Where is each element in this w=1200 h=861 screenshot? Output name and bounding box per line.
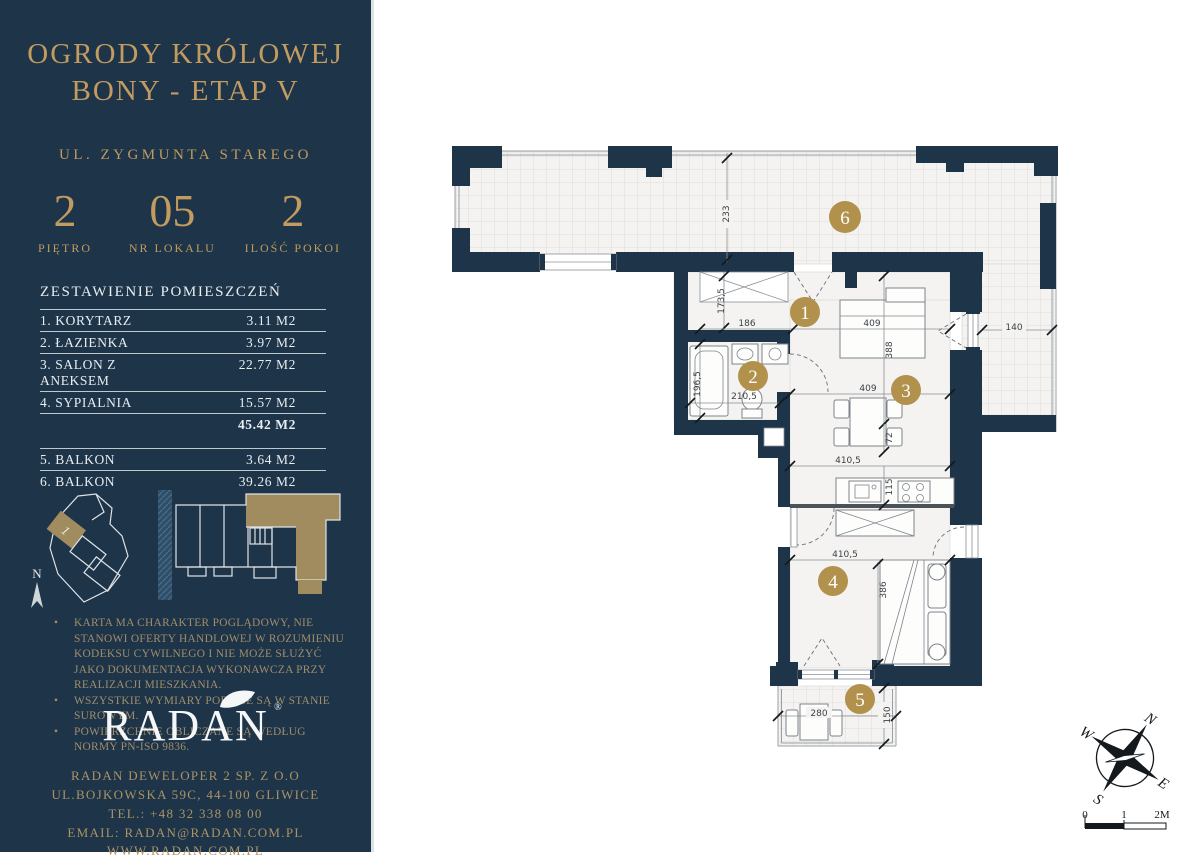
- north-arrow-icon: [31, 582, 43, 608]
- compass-s: S: [1090, 791, 1105, 809]
- disclaimer-item: KARTA MA CHARAKTER POGLĄDOWY, NIE STANOW…: [52, 616, 352, 694]
- scale-1: 1: [1121, 809, 1127, 821]
- rooms-table-heading: ZESTAWIENIE POMIESZCZEŃ: [40, 284, 326, 301]
- room-marker-4: 4: [828, 572, 838, 593]
- room-marker-6: 6: [840, 208, 850, 229]
- room-marker-5: 5: [855, 690, 865, 711]
- dim-label: 210,5: [731, 392, 757, 402]
- dim-label: 115: [885, 478, 895, 495]
- scale-bar: 0 1 2M: [1082, 809, 1170, 829]
- developer-logo: RADAN ®: [0, 702, 371, 750]
- dim-label: 173,5: [717, 288, 727, 314]
- washing-machine: [762, 344, 788, 364]
- north-label: N: [32, 566, 42, 581]
- dim-label: 233: [722, 205, 732, 222]
- room-marker-1: 1: [800, 303, 810, 324]
- sink: [732, 344, 758, 364]
- stat-unit-number: 05 NR LOKALU: [129, 186, 216, 256]
- site-building-1: 1: [47, 511, 86, 549]
- dim-label: 140: [1005, 323, 1022, 333]
- scale-2m: 2M: [1154, 809, 1170, 821]
- compass-w: W: [1076, 724, 1096, 745]
- dim-label: 409: [859, 384, 876, 394]
- dining-table: [850, 398, 886, 446]
- door-leaf: [791, 507, 797, 547]
- dim-label: 409: [863, 319, 880, 329]
- rooms-table: ZESTAWIENIE POMIESZCZEŃ 1. KORYTARZ 3.11…: [40, 284, 326, 492]
- stat-floor: 2 PIĘTRO: [30, 186, 100, 256]
- leaf-icon: [219, 689, 257, 711]
- stat-room-count: 2 ILOŚĆ POKOI: [245, 186, 341, 256]
- bedside-lamp: [929, 564, 945, 580]
- total-area-row: 45.42 M2: [40, 413, 326, 435]
- floor-overview-thumbnail: [150, 485, 362, 605]
- dim-label: 410,5: [835, 456, 861, 466]
- dim-label: 280: [810, 709, 827, 719]
- info-panel: OGRODY KRÓLOWEJBONY - ETAP V UL. ZYGMUNT…: [0, 0, 374, 852]
- bedside-lamp: [929, 644, 945, 660]
- dim-label: 410,5: [832, 550, 858, 560]
- compass-e: E: [1154, 774, 1171, 793]
- room-marker-3: 3: [901, 381, 911, 402]
- unit-stats: 2 PIĘTRO 05 NR LOKALU 2 ILOŚĆ POKOI: [0, 186, 371, 256]
- site-plan-thumbnail: 1 N: [24, 490, 144, 612]
- table-row: 5. BALKON 3.64 M2: [40, 448, 326, 470]
- street-address: UL. ZYGMUNTA STAREGO: [0, 147, 371, 164]
- dim-label: 150: [883, 706, 893, 723]
- contact-line: TEL.: +48 32 338 08 00: [0, 805, 371, 824]
- table-row: 4. SYPIALNIA 15.57 M2: [40, 391, 326, 413]
- contact-block: RADAN DEWELOPER 2 SP. Z O.O UL.BOJKOWSKA…: [0, 767, 371, 861]
- kitchen-sink: [849, 481, 881, 502]
- contact-line: RADAN DEWELOPER 2 SP. Z O.O: [0, 767, 371, 786]
- project-title: OGRODY KRÓLOWEJBONY - ETAP V: [0, 36, 371, 110]
- table-row: 3. SALON Z ANEKSEM 22.77 M2: [40, 353, 326, 391]
- contact-line: UL.BOJKOWSKA 59C, 44-100 GLIWICE: [0, 786, 371, 805]
- dim-label: 186: [738, 319, 755, 329]
- table-row: 1. KORYTARZ 3.11 M2: [40, 309, 326, 331]
- balcony-chair: [786, 710, 798, 736]
- dim-label: 196,5: [693, 371, 703, 397]
- chair: [834, 400, 849, 418]
- chair: [834, 428, 849, 446]
- dim-label: 388: [885, 341, 895, 358]
- shaft-box: [700, 272, 788, 302]
- registered-mark: ®: [274, 702, 282, 713]
- dim-label: 386: [879, 581, 889, 598]
- table-row: 2. ŁAZIENKA 3.97 M2: [40, 331, 326, 353]
- dim-label: 72: [885, 432, 895, 443]
- compass-n: N: [1141, 709, 1160, 729]
- highlighted-balcony: [298, 580, 322, 594]
- room-marker-2: 2: [748, 367, 758, 388]
- contact-line: EMAIL: RADAN@RADAN.COM.PL: [0, 824, 371, 843]
